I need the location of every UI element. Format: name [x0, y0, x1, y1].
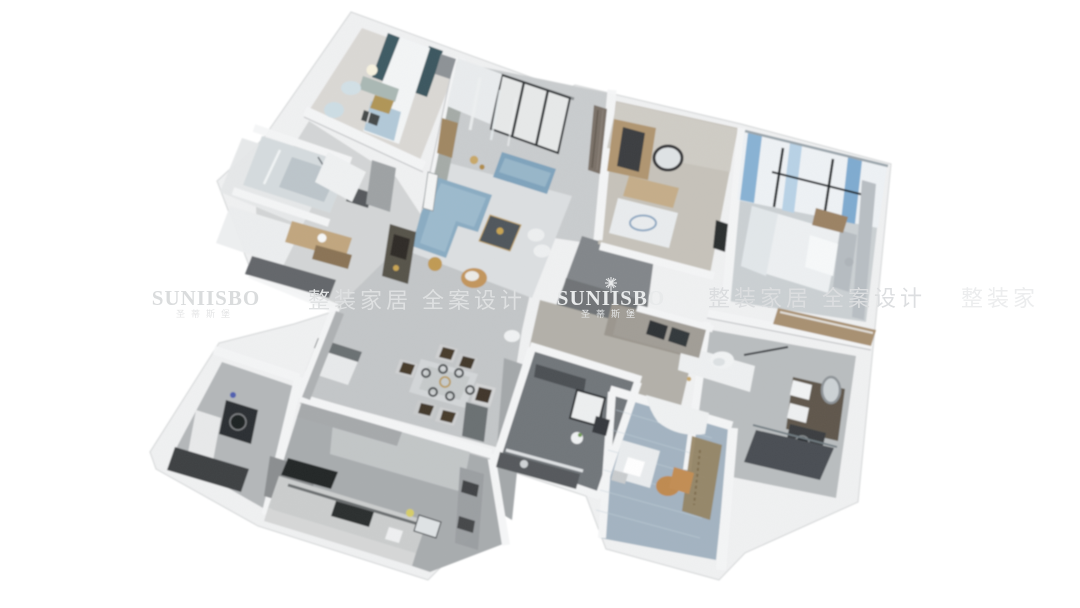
svg-text:SUNIISBO: SUNIISBO [152, 286, 260, 310]
svg-text:整装家: 整装家 [961, 286, 1039, 311]
svg-text:圣蒂斯堡: 圣蒂斯堡 [176, 308, 236, 319]
